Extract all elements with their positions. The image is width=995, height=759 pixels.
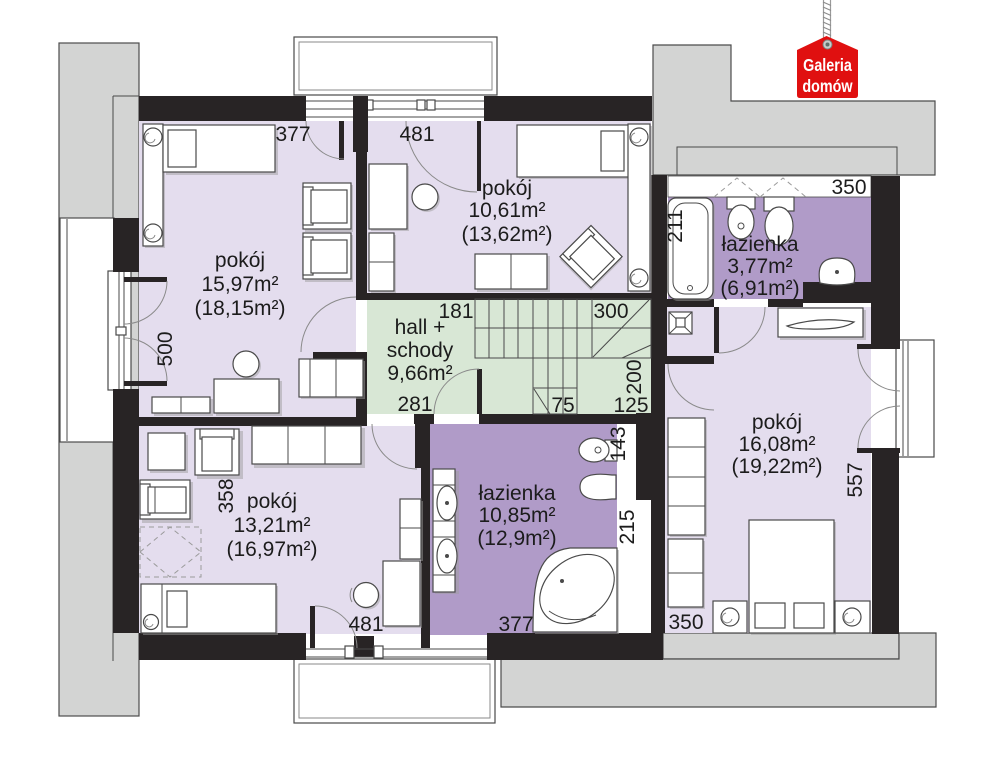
svg-text:schody: schody: [387, 339, 454, 362]
svg-text:(16,97m²): (16,97m²): [226, 538, 317, 561]
svg-text:pokój: pokój: [752, 411, 802, 434]
svg-text:(6,91m²): (6,91m²): [720, 277, 799, 300]
svg-text:350: 350: [668, 611, 703, 634]
svg-text:10,85m²: 10,85m²: [478, 504, 555, 527]
svg-text:(13,62m²): (13,62m²): [461, 223, 552, 246]
svg-text:200: 200: [623, 359, 646, 394]
svg-text:łazienka: łazienka: [721, 233, 798, 256]
svg-text:13,21m²: 13,21m²: [233, 514, 310, 537]
svg-text:3,77m²: 3,77m²: [727, 255, 792, 278]
svg-text:481: 481: [348, 613, 383, 636]
svg-text:(18,15m²): (18,15m²): [194, 297, 285, 320]
svg-text:350: 350: [831, 176, 866, 199]
svg-text:pokój: pokój: [482, 177, 532, 200]
svg-text:pokój: pokój: [215, 249, 265, 272]
svg-text:(19,22m²): (19,22m²): [731, 455, 822, 478]
svg-text:9,66m²: 9,66m²: [387, 362, 452, 385]
svg-text:75: 75: [551, 394, 574, 417]
svg-text:377: 377: [275, 123, 310, 146]
svg-text:15,97m²: 15,97m²: [201, 273, 278, 296]
svg-text:domów: domów: [802, 78, 853, 97]
svg-text:16,08m²: 16,08m²: [738, 433, 815, 456]
svg-text:łazienka: łazienka: [478, 482, 555, 505]
svg-text:215: 215: [616, 509, 639, 544]
svg-text:557: 557: [844, 462, 867, 497]
svg-text:358: 358: [215, 478, 238, 513]
svg-text:281: 281: [397, 393, 432, 416]
svg-text:211: 211: [664, 209, 687, 242]
svg-text:125: 125: [613, 394, 648, 417]
svg-text:143: 143: [607, 426, 630, 461]
svg-text:377: 377: [498, 613, 533, 636]
svg-text:Galeria: Galeria: [803, 57, 852, 76]
svg-text:(12,9m²): (12,9m²): [477, 527, 556, 550]
svg-text:pokój: pokój: [247, 490, 297, 513]
svg-text:300: 300: [593, 300, 628, 323]
svg-text:500: 500: [154, 331, 177, 366]
svg-text:481: 481: [399, 123, 434, 146]
svg-text:10,61m²: 10,61m²: [468, 199, 545, 222]
svg-text:181: 181: [438, 300, 473, 323]
